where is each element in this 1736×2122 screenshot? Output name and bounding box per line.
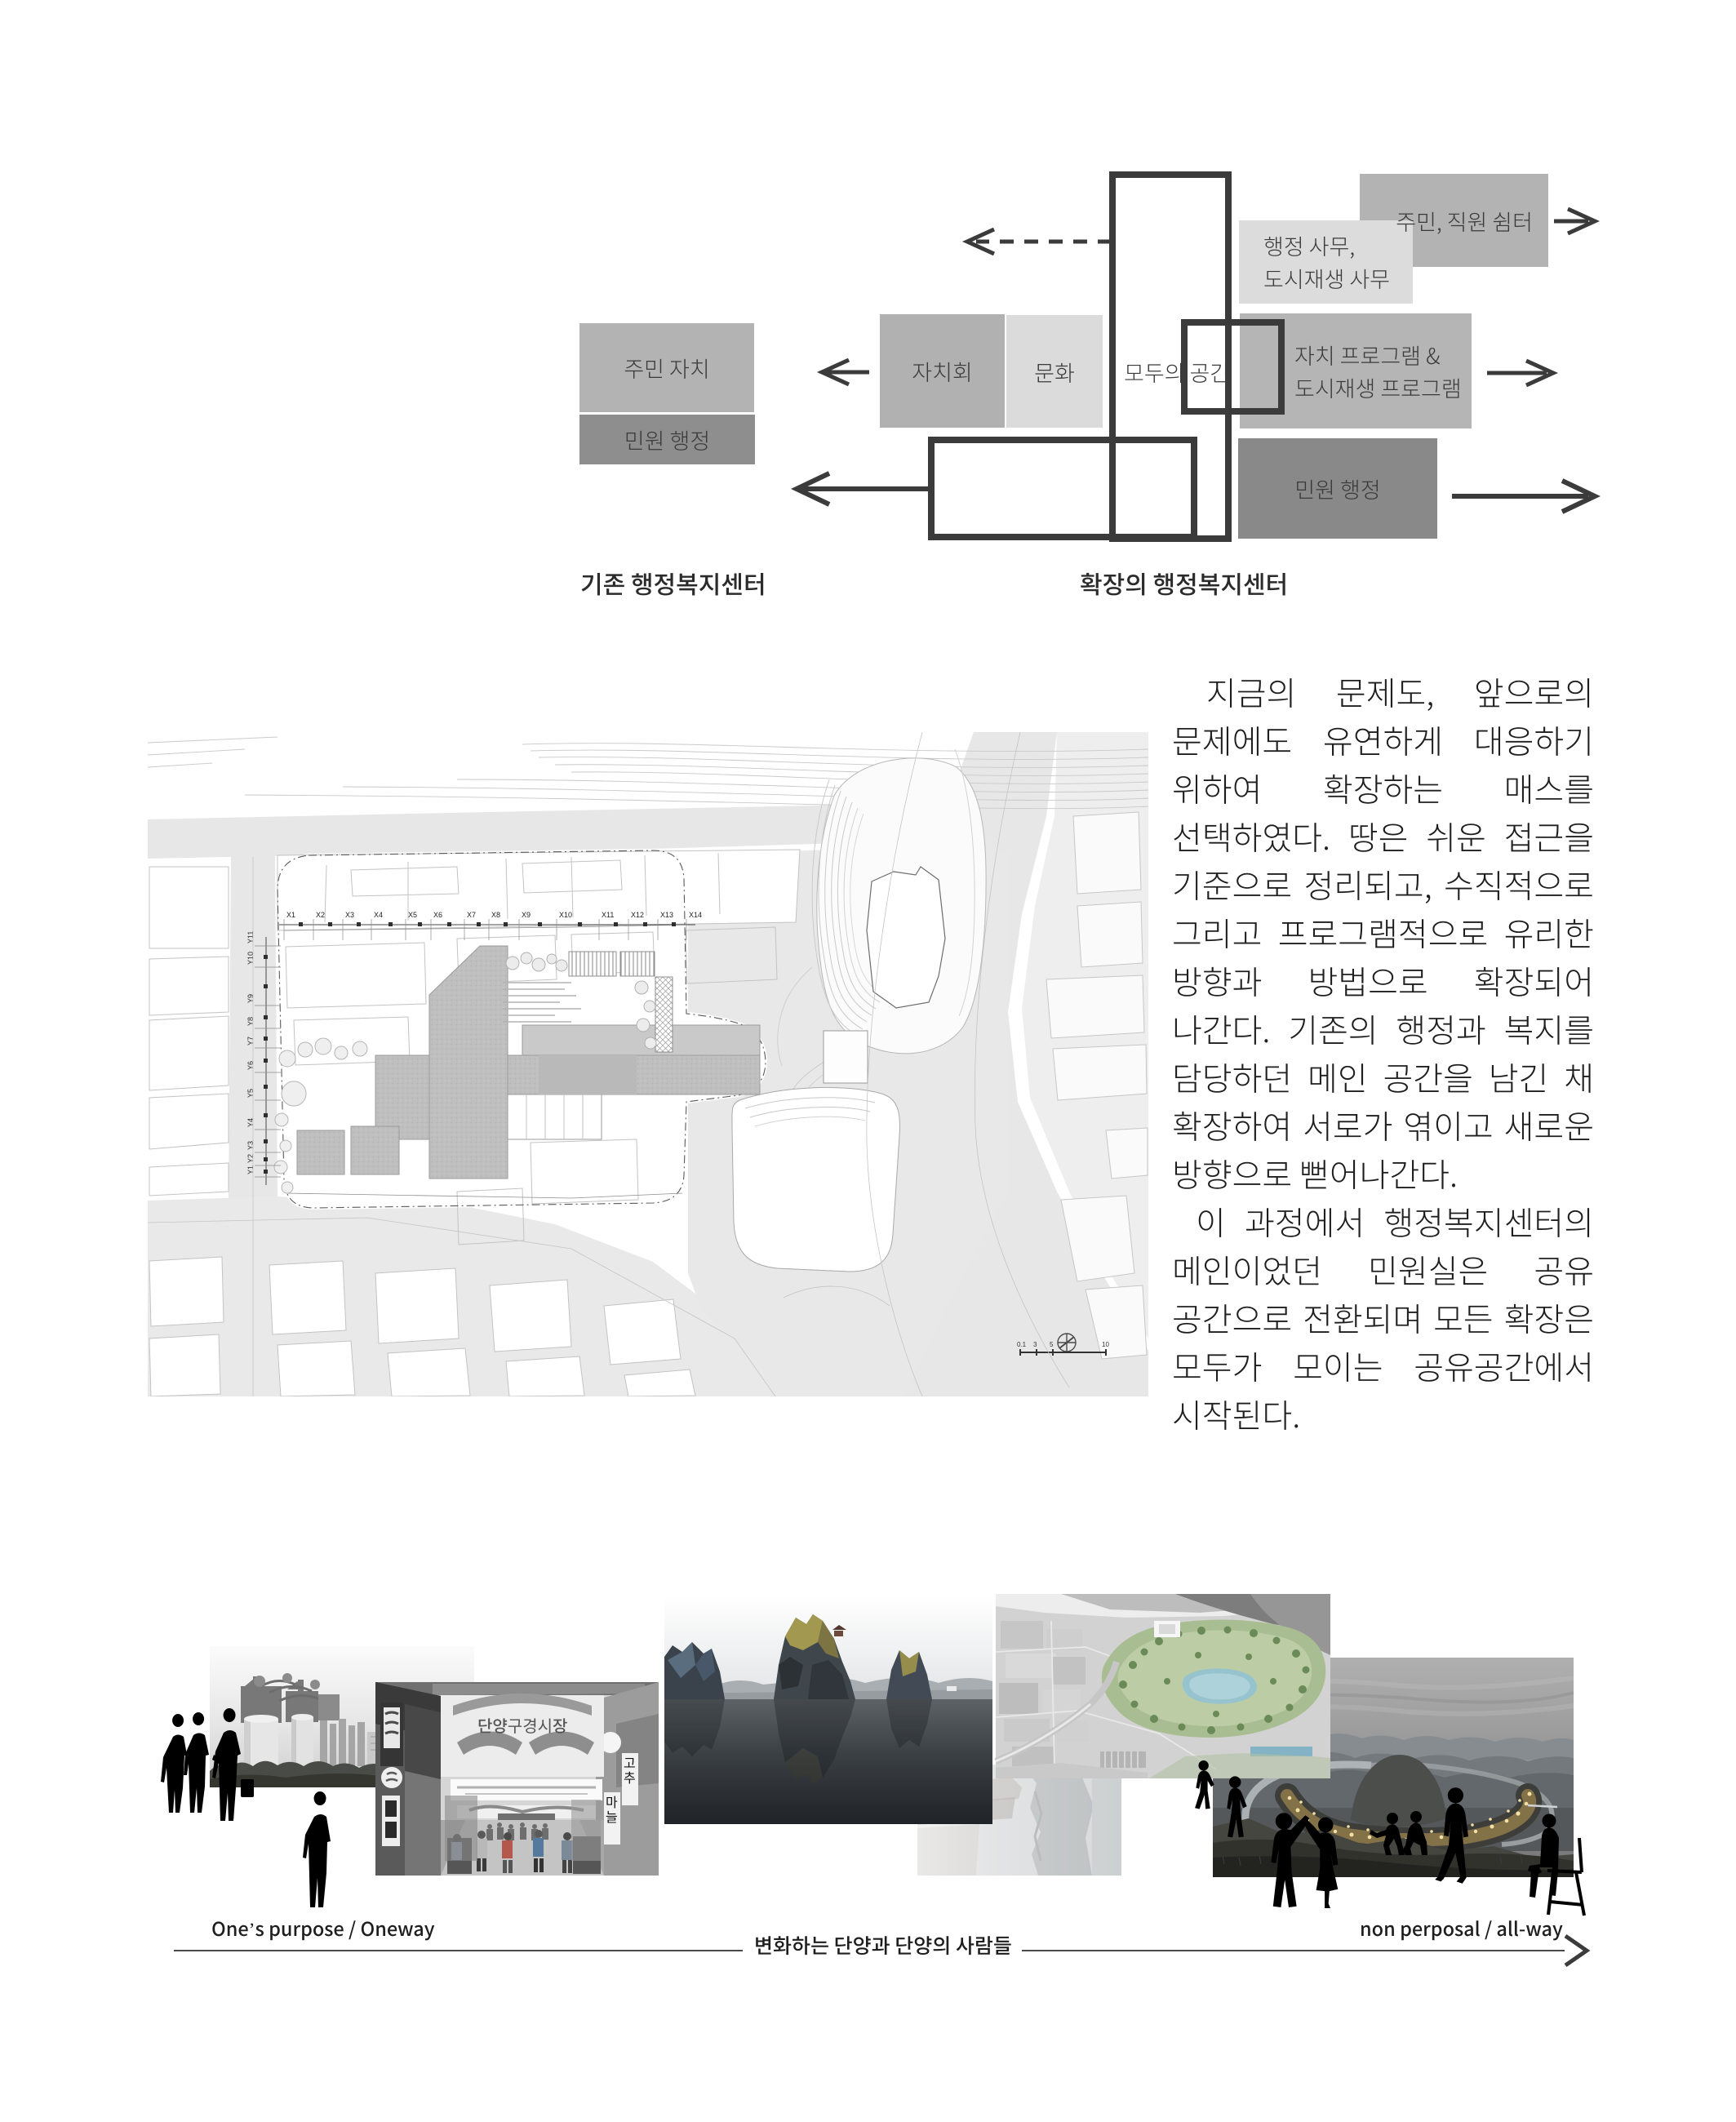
svg-text:Y10: Y10 xyxy=(246,952,255,965)
svg-text:10: 10 xyxy=(1102,1341,1109,1348)
svg-text:X10: X10 xyxy=(559,911,572,919)
svg-text:모두의 공간: 모두의 공간 xyxy=(1124,356,1230,388)
svg-text:변화하는 단양과 단양의 사람들: 변화하는 단양과 단양의 사람들 xyxy=(754,1930,1012,1960)
svg-text:Y1: Y1 xyxy=(246,1165,255,1174)
svg-text:Y8: Y8 xyxy=(246,1017,255,1026)
svg-text:One’s purpose / Oneway: One’s purpose / Oneway xyxy=(211,1914,435,1942)
svg-text:늘: 늘 xyxy=(606,1806,618,1826)
svg-text:추: 추 xyxy=(624,1767,636,1787)
svg-text:X12: X12 xyxy=(631,911,644,919)
svg-text:Y4: Y4 xyxy=(246,1118,255,1127)
svg-text:X13: X13 xyxy=(660,911,673,919)
svg-text:Y2: Y2 xyxy=(246,1154,255,1163)
svg-text:0.1: 0.1 xyxy=(1017,1341,1027,1348)
svg-text:X5: X5 xyxy=(408,911,417,919)
svg-text:X3: X3 xyxy=(345,911,354,919)
svg-text:X11: X11 xyxy=(602,911,614,919)
svg-text:X4: X4 xyxy=(374,911,383,919)
svg-text:3: 3 xyxy=(1033,1341,1037,1348)
svg-text:X8: X8 xyxy=(491,911,500,919)
svg-text:X6: X6 xyxy=(433,911,442,919)
svg-text:Y5: Y5 xyxy=(246,1089,255,1098)
svg-text:X1: X1 xyxy=(286,911,295,919)
svg-text:non perposal / all-way: non perposal / all-way xyxy=(1360,1914,1563,1942)
svg-text:X14: X14 xyxy=(689,911,702,919)
svg-text:5: 5 xyxy=(1050,1341,1054,1348)
svg-text:X2: X2 xyxy=(316,911,325,919)
svg-text:X7: X7 xyxy=(467,911,476,919)
svg-text:X9: X9 xyxy=(522,911,531,919)
svg-text:Y9: Y9 xyxy=(246,994,255,1003)
svg-text:Y7: Y7 xyxy=(246,1037,255,1045)
svg-text:Y3: Y3 xyxy=(246,1141,255,1150)
svg-text:Y11: Y11 xyxy=(246,931,255,943)
svg-text:단양구경시장: 단양구경시장 xyxy=(477,1713,567,1737)
svg-text:Y6: Y6 xyxy=(246,1061,255,1070)
